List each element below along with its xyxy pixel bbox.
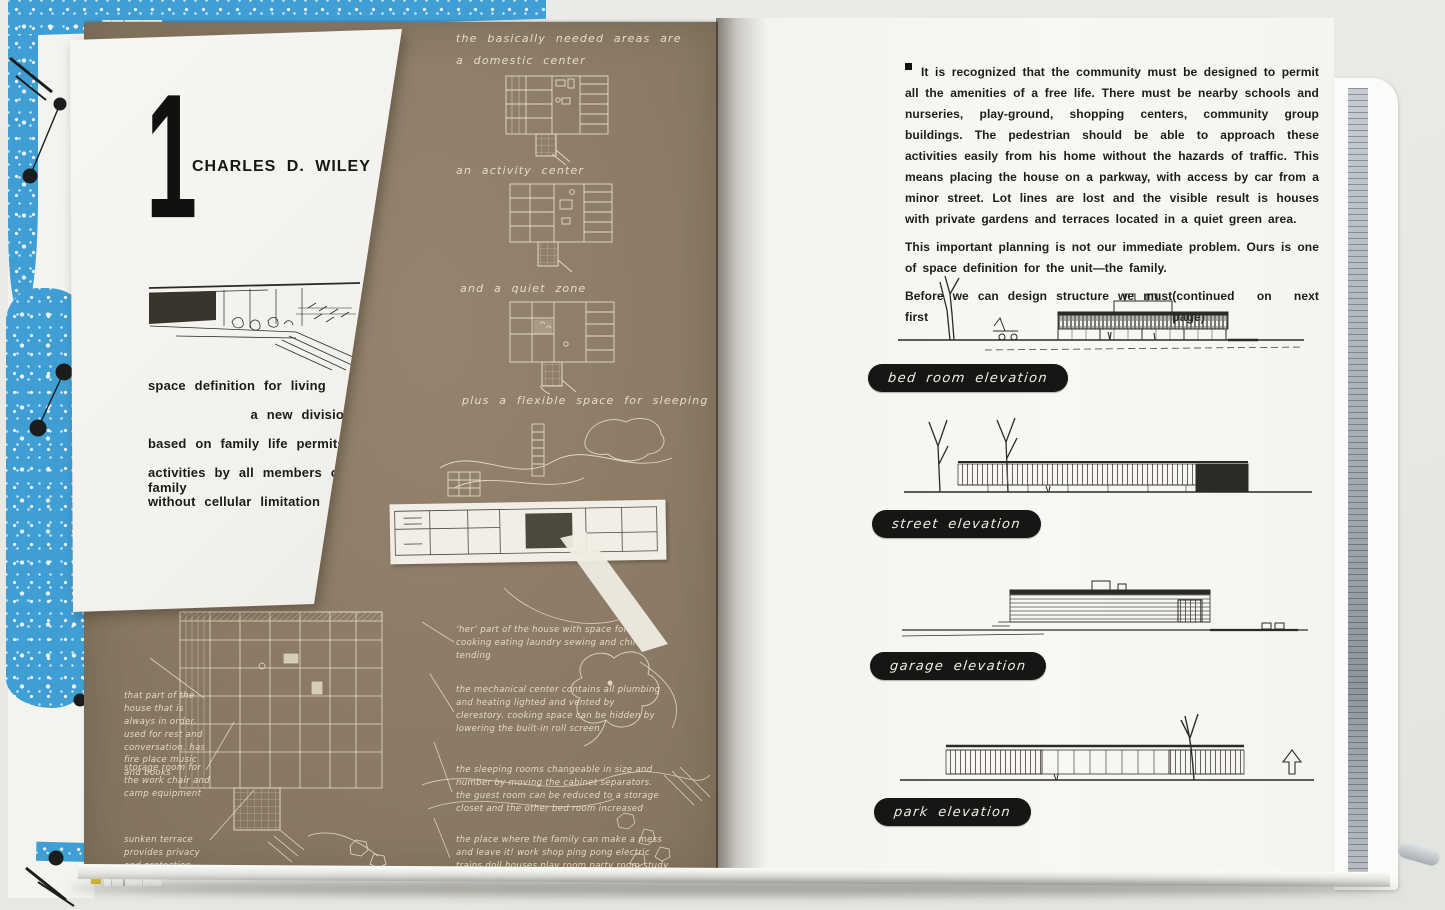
annotation-her-part: ‘her’ part of the house with space for c… [456, 624, 666, 663]
intro-line-5: without cellular limitation [148, 494, 320, 509]
paragraph-1-text: It is recognized that the community must… [905, 65, 1319, 226]
park-elevation-label: park elevation [874, 798, 1031, 826]
paragraph-1: It is recognized that the community must… [905, 62, 1319, 230]
chapter-number: 1 [146, 76, 197, 239]
garage-elevation-drawing [894, 566, 1324, 652]
annotation-mechanical-center: the mechanical center contains all plumb… [456, 684, 661, 736]
chapter-title-card: 1 CHARLES D. WILEY space definition for … [66, 24, 406, 616]
street-elevation-drawing [896, 416, 1324, 510]
bedroom-elevation-label: bed room elevation [868, 364, 1068, 392]
page-edges-right-strip [1348, 88, 1368, 882]
gutter-shadow [716, 18, 768, 880]
page-corner-curl [1397, 841, 1442, 868]
annotation-storage-room: storage room for the work chair and camp… [124, 762, 212, 801]
annotation-sleeping-rooms: the sleeping rooms changeable in size an… [456, 764, 666, 816]
right-page: It is recognized that the community must… [718, 18, 1334, 882]
garage-elevation-label: garage elevation [870, 652, 1046, 680]
intro-line-3: based on family life permits varied [148, 436, 393, 451]
book-drop-shadow [70, 880, 1400, 896]
chapter-author: CHARLES D. WILEY [192, 158, 371, 176]
park-elevation-drawing [894, 708, 1330, 798]
square-bullet-icon [905, 63, 912, 70]
intro-line-4: activities by all members of the family [148, 465, 406, 495]
intro-line-2: a new division, [206, 407, 356, 422]
intro-line-1: space definition for living [148, 378, 326, 393]
bedroom-elevation-drawing [890, 268, 1318, 364]
book-spread-photo: the basically needed areas are a domesti… [0, 0, 1445, 910]
street-elevation-label: street elevation [872, 510, 1041, 538]
interior-perspective-sketch [146, 274, 364, 372]
